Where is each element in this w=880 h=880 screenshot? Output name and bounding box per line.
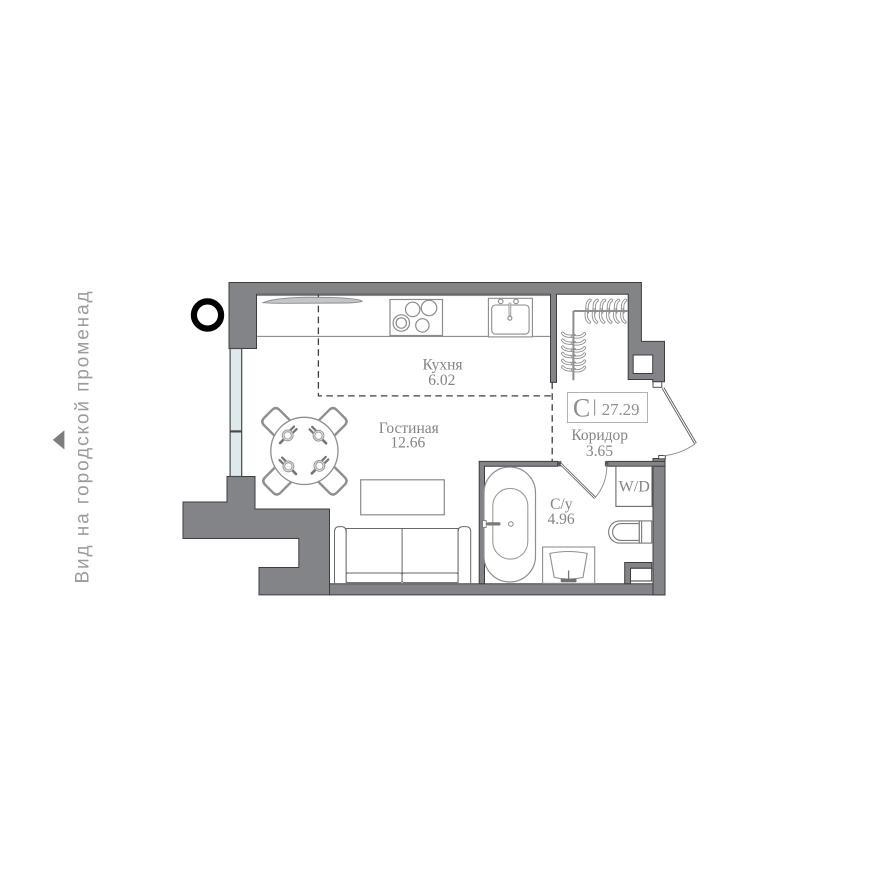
svg-text:С: С (573, 393, 590, 422)
svg-text:12.66: 12.66 (390, 435, 425, 452)
svg-text:Кухня: Кухня (422, 356, 462, 373)
svg-text:W/D: W/D (619, 479, 650, 496)
svg-text:Вид на городской променад: Вид на городской променад (73, 289, 94, 583)
svg-text:6.02: 6.02 (428, 372, 455, 389)
svg-text:4.96: 4.96 (547, 511, 574, 528)
svg-text:Коридор: Коридор (571, 427, 628, 444)
svg-text:3.65: 3.65 (586, 443, 613, 460)
svg-text:27.29: 27.29 (602, 400, 640, 419)
